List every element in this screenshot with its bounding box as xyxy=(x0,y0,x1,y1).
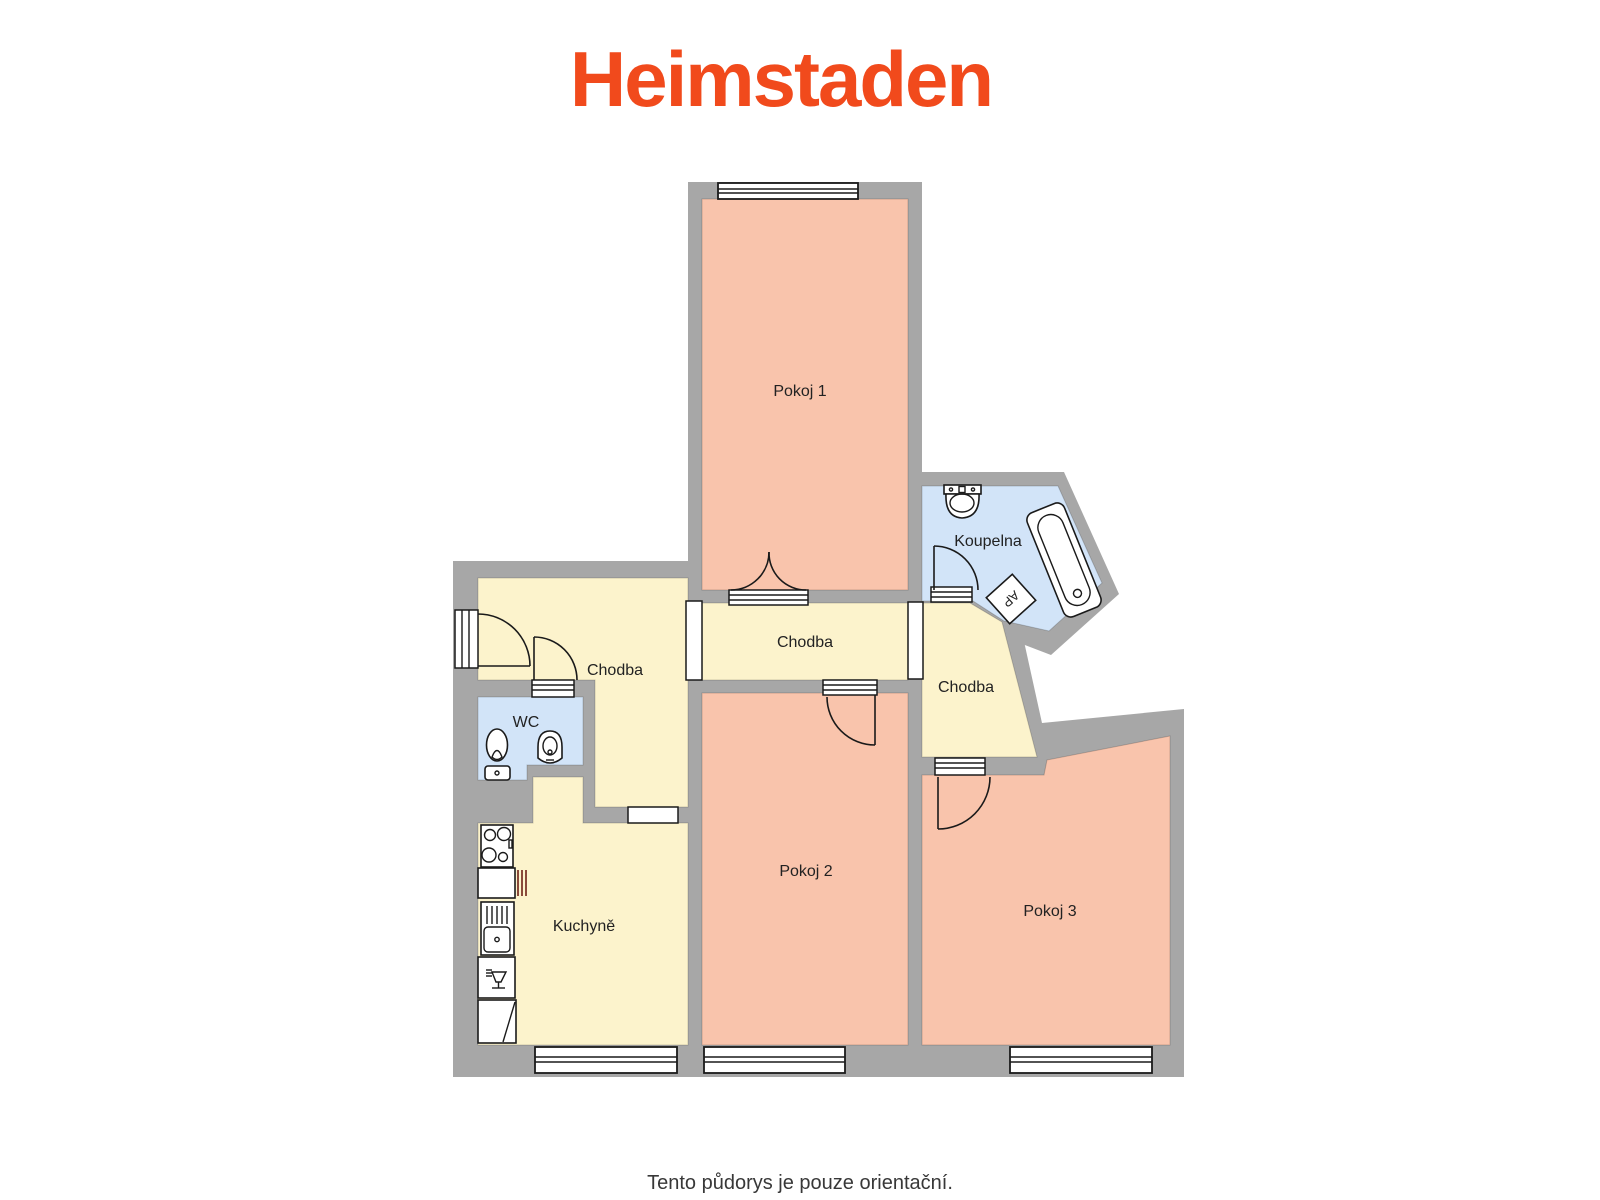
label-chodba-left: Chodba xyxy=(587,662,643,679)
window-pokoj-2 xyxy=(704,1047,845,1073)
label-chodba-middle: Chodba xyxy=(777,634,833,651)
bidet-icon xyxy=(538,731,562,763)
window-pokoj-3 xyxy=(1010,1047,1152,1073)
label-pokoj-2: Pokoj 2 xyxy=(779,863,832,880)
label-pokoj-3: Pokoj 3 xyxy=(1023,903,1076,920)
label-koupelna: Koupelna xyxy=(954,533,1022,550)
label-chodba-right: Chodba xyxy=(938,679,994,696)
window-kuchyne xyxy=(535,1047,677,1073)
label-wc: WC xyxy=(513,714,540,731)
label-kuchyne: Kuchyně xyxy=(553,918,615,935)
opening-chodba-left xyxy=(686,601,702,680)
toilet-icon xyxy=(485,729,510,780)
disclaimer-text: Tento půdorys je pouze orientační. xyxy=(647,1172,953,1195)
kitchen-sink-icon xyxy=(481,902,514,955)
page: Heimstaden xyxy=(0,0,1600,1200)
opening-chodba-right xyxy=(908,602,923,679)
stove-icon xyxy=(481,825,513,867)
kitchen-counter xyxy=(478,868,515,898)
opening-kuchyne xyxy=(628,807,678,823)
label-pokoj-1: Pokoj 1 xyxy=(773,383,826,400)
window-pokoj-1 xyxy=(718,183,858,199)
corner-cabinet xyxy=(478,1000,516,1043)
floor-plan: AP xyxy=(0,0,1600,1200)
boiler-icon xyxy=(478,957,515,998)
room-pokoj-3 xyxy=(922,736,1170,1045)
